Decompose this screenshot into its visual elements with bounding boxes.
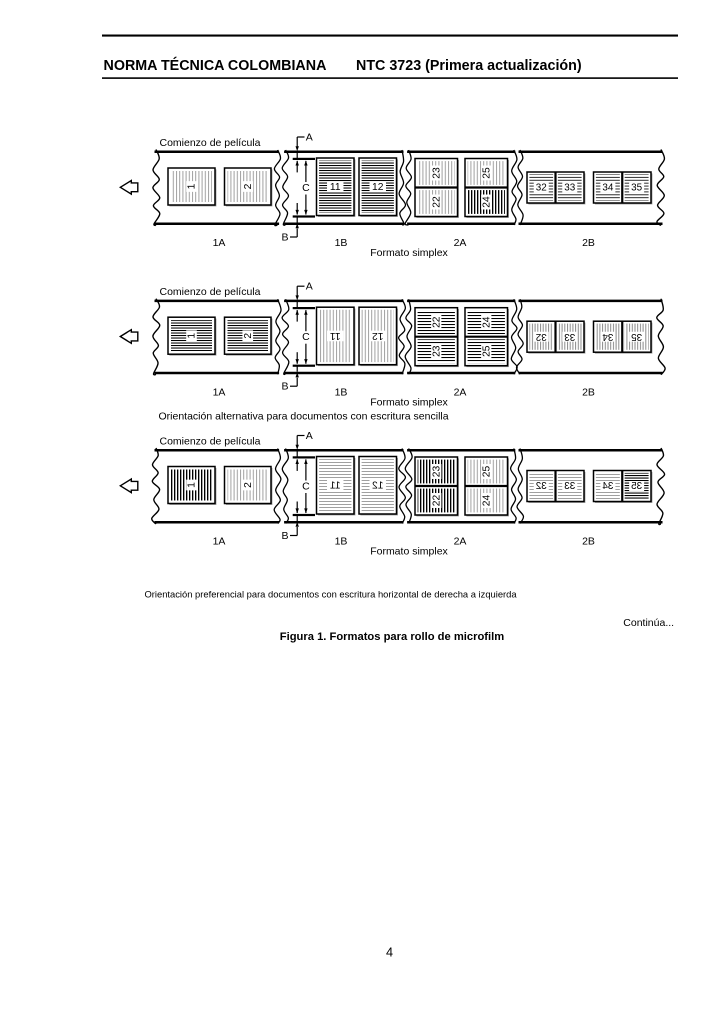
svg-text:A: A bbox=[306, 430, 313, 442]
svg-text:1: 1 bbox=[187, 482, 198, 488]
svg-text:33: 33 bbox=[564, 481, 575, 492]
svg-text:34: 34 bbox=[602, 182, 613, 193]
svg-text:B: B bbox=[281, 232, 288, 244]
svg-text:1B: 1B bbox=[335, 536, 348, 548]
svg-text:Continúa...: Continúa... bbox=[623, 617, 674, 629]
svg-text:Comienzo de película: Comienzo de película bbox=[160, 286, 261, 298]
svg-text:24: 24 bbox=[481, 196, 492, 208]
svg-text:22: 22 bbox=[431, 495, 442, 507]
svg-text:NORMA TÉCNICA COLOMBIANA: NORMA TÉCNICA COLOMBIANA bbox=[104, 57, 327, 74]
svg-text:32: 32 bbox=[536, 331, 547, 342]
svg-text:2: 2 bbox=[243, 183, 254, 189]
svg-text:11: 11 bbox=[330, 330, 341, 341]
svg-text:1B: 1B bbox=[335, 386, 348, 398]
svg-text:11: 11 bbox=[330, 182, 341, 193]
svg-text:33: 33 bbox=[564, 182, 575, 193]
svg-text:2B: 2B bbox=[582, 536, 595, 548]
svg-text:A: A bbox=[306, 132, 313, 144]
svg-text:35: 35 bbox=[631, 481, 642, 492]
svg-text:2B: 2B bbox=[582, 386, 595, 398]
svg-text:12: 12 bbox=[372, 480, 384, 491]
svg-text:1: 1 bbox=[187, 183, 198, 189]
svg-text:12: 12 bbox=[372, 182, 384, 193]
svg-text:2A: 2A bbox=[454, 536, 467, 548]
svg-text:23: 23 bbox=[431, 345, 442, 357]
svg-text:2B: 2B bbox=[582, 237, 595, 249]
svg-text:34: 34 bbox=[602, 331, 613, 342]
svg-text:Formato simplex: Formato simplex bbox=[370, 546, 448, 558]
svg-text:22: 22 bbox=[431, 196, 442, 208]
svg-text:1: 1 bbox=[187, 333, 198, 339]
svg-text:2A: 2A bbox=[454, 237, 467, 249]
svg-text:C: C bbox=[302, 182, 310, 194]
svg-text:1A: 1A bbox=[213, 536, 226, 548]
svg-text:11: 11 bbox=[330, 480, 341, 491]
svg-text:Orientación alternativa para d: Orientación alternativa para documentos … bbox=[159, 411, 449, 423]
svg-text:35: 35 bbox=[631, 182, 642, 193]
svg-text:1B: 1B bbox=[335, 237, 348, 249]
svg-text:1A: 1A bbox=[213, 237, 226, 249]
svg-text:2: 2 bbox=[243, 333, 254, 339]
svg-text:24: 24 bbox=[481, 316, 492, 328]
svg-text:24: 24 bbox=[481, 495, 492, 507]
svg-text:Formato simplex: Formato simplex bbox=[370, 247, 448, 259]
svg-text:12: 12 bbox=[372, 330, 384, 341]
svg-text:NTC 3723 (Primera actualizació: NTC 3723 (Primera actualización) bbox=[356, 58, 582, 74]
svg-text:23: 23 bbox=[431, 167, 442, 179]
svg-text:25: 25 bbox=[481, 345, 492, 357]
svg-text:2A: 2A bbox=[454, 386, 467, 398]
svg-text:32: 32 bbox=[536, 481, 547, 492]
svg-text:32: 32 bbox=[536, 182, 547, 193]
svg-text:Orientación preferencial para: Orientación preferencial para documentos… bbox=[145, 589, 518, 600]
svg-text:1A: 1A bbox=[213, 386, 226, 398]
svg-text:C: C bbox=[302, 331, 310, 343]
svg-text:35: 35 bbox=[631, 331, 642, 342]
svg-text:B: B bbox=[281, 530, 288, 542]
svg-text:B: B bbox=[281, 381, 288, 393]
svg-text:Formato simplex: Formato simplex bbox=[370, 396, 448, 408]
svg-text:34: 34 bbox=[602, 481, 613, 492]
svg-text:A: A bbox=[306, 281, 313, 293]
svg-text:Figura 1. Formatos para rollo: Figura 1. Formatos para rollo de microfi… bbox=[280, 631, 504, 643]
svg-text:C: C bbox=[302, 480, 310, 492]
svg-text:2: 2 bbox=[243, 482, 254, 488]
svg-text:33: 33 bbox=[564, 331, 575, 342]
svg-text:4: 4 bbox=[386, 946, 393, 960]
svg-text:22: 22 bbox=[431, 316, 442, 328]
svg-text:25: 25 bbox=[481, 167, 492, 179]
svg-text:Comienzo de película: Comienzo de película bbox=[160, 137, 261, 149]
svg-text:25: 25 bbox=[481, 466, 492, 478]
svg-text:Comienzo de película: Comienzo de película bbox=[160, 435, 261, 447]
svg-text:23: 23 bbox=[431, 466, 442, 478]
